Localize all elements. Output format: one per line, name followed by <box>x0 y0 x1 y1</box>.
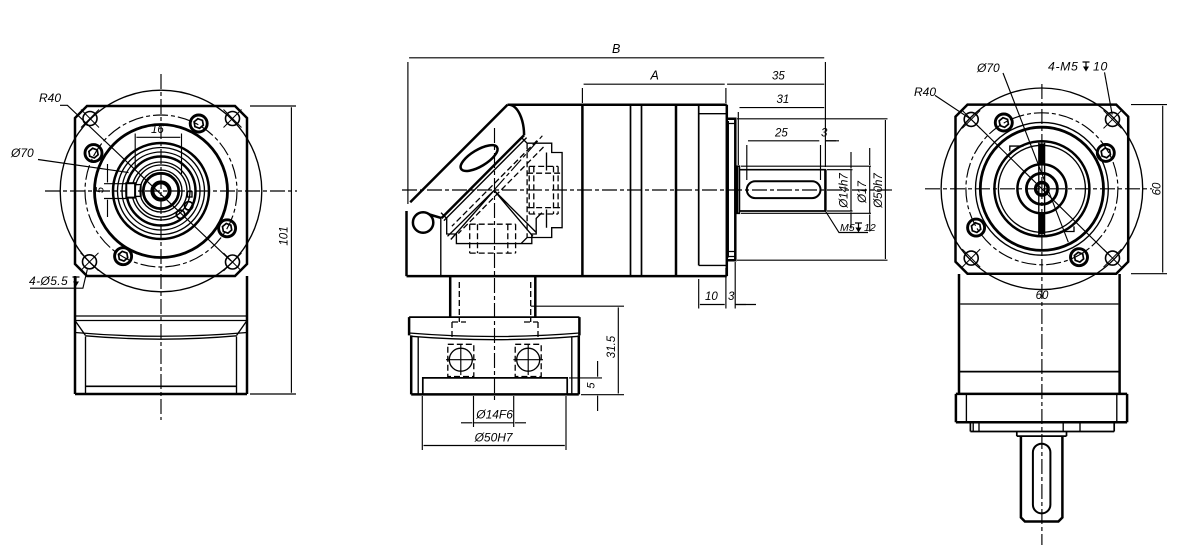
svg-text:60: 60 <box>1151 182 1163 195</box>
svg-text:A: A <box>650 69 659 83</box>
svg-text:Ø17: Ø17 <box>857 181 869 204</box>
svg-text:Ø50H7: Ø50H7 <box>474 431 514 445</box>
svg-text:Ø70: Ø70 <box>976 61 1000 75</box>
svg-text:25: 25 <box>774 127 788 139</box>
svg-text:Ø14h7: Ø14h7 <box>839 173 851 209</box>
svg-text:B: B <box>612 42 620 56</box>
svg-text:12: 12 <box>864 222 876 234</box>
svg-text:101: 101 <box>278 226 290 245</box>
svg-text:M5: M5 <box>840 222 855 234</box>
svg-text:31: 31 <box>777 94 790 106</box>
svg-text:5: 5 <box>95 186 107 193</box>
svg-text:31.5: 31.5 <box>606 335 618 358</box>
svg-text:5: 5 <box>585 382 597 389</box>
svg-text:Ø50h7: Ø50h7 <box>873 173 885 209</box>
svg-text:10: 10 <box>1093 60 1108 74</box>
svg-text:3: 3 <box>728 291 735 303</box>
svg-text:R40: R40 <box>914 85 936 99</box>
svg-text:4-M5: 4-M5 <box>1048 60 1078 74</box>
svg-text:Ø70: Ø70 <box>10 146 34 160</box>
svg-text:4-Ø5.5: 4-Ø5.5 <box>29 274 68 288</box>
svg-text:Ø14F6: Ø14F6 <box>475 408 513 422</box>
svg-text:3: 3 <box>821 127 828 139</box>
svg-text:35: 35 <box>772 71 785 83</box>
svg-text:R40: R40 <box>39 91 61 105</box>
svg-text:16: 16 <box>151 124 164 136</box>
svg-text:10: 10 <box>705 291 718 303</box>
svg-text:60: 60 <box>1036 290 1049 302</box>
